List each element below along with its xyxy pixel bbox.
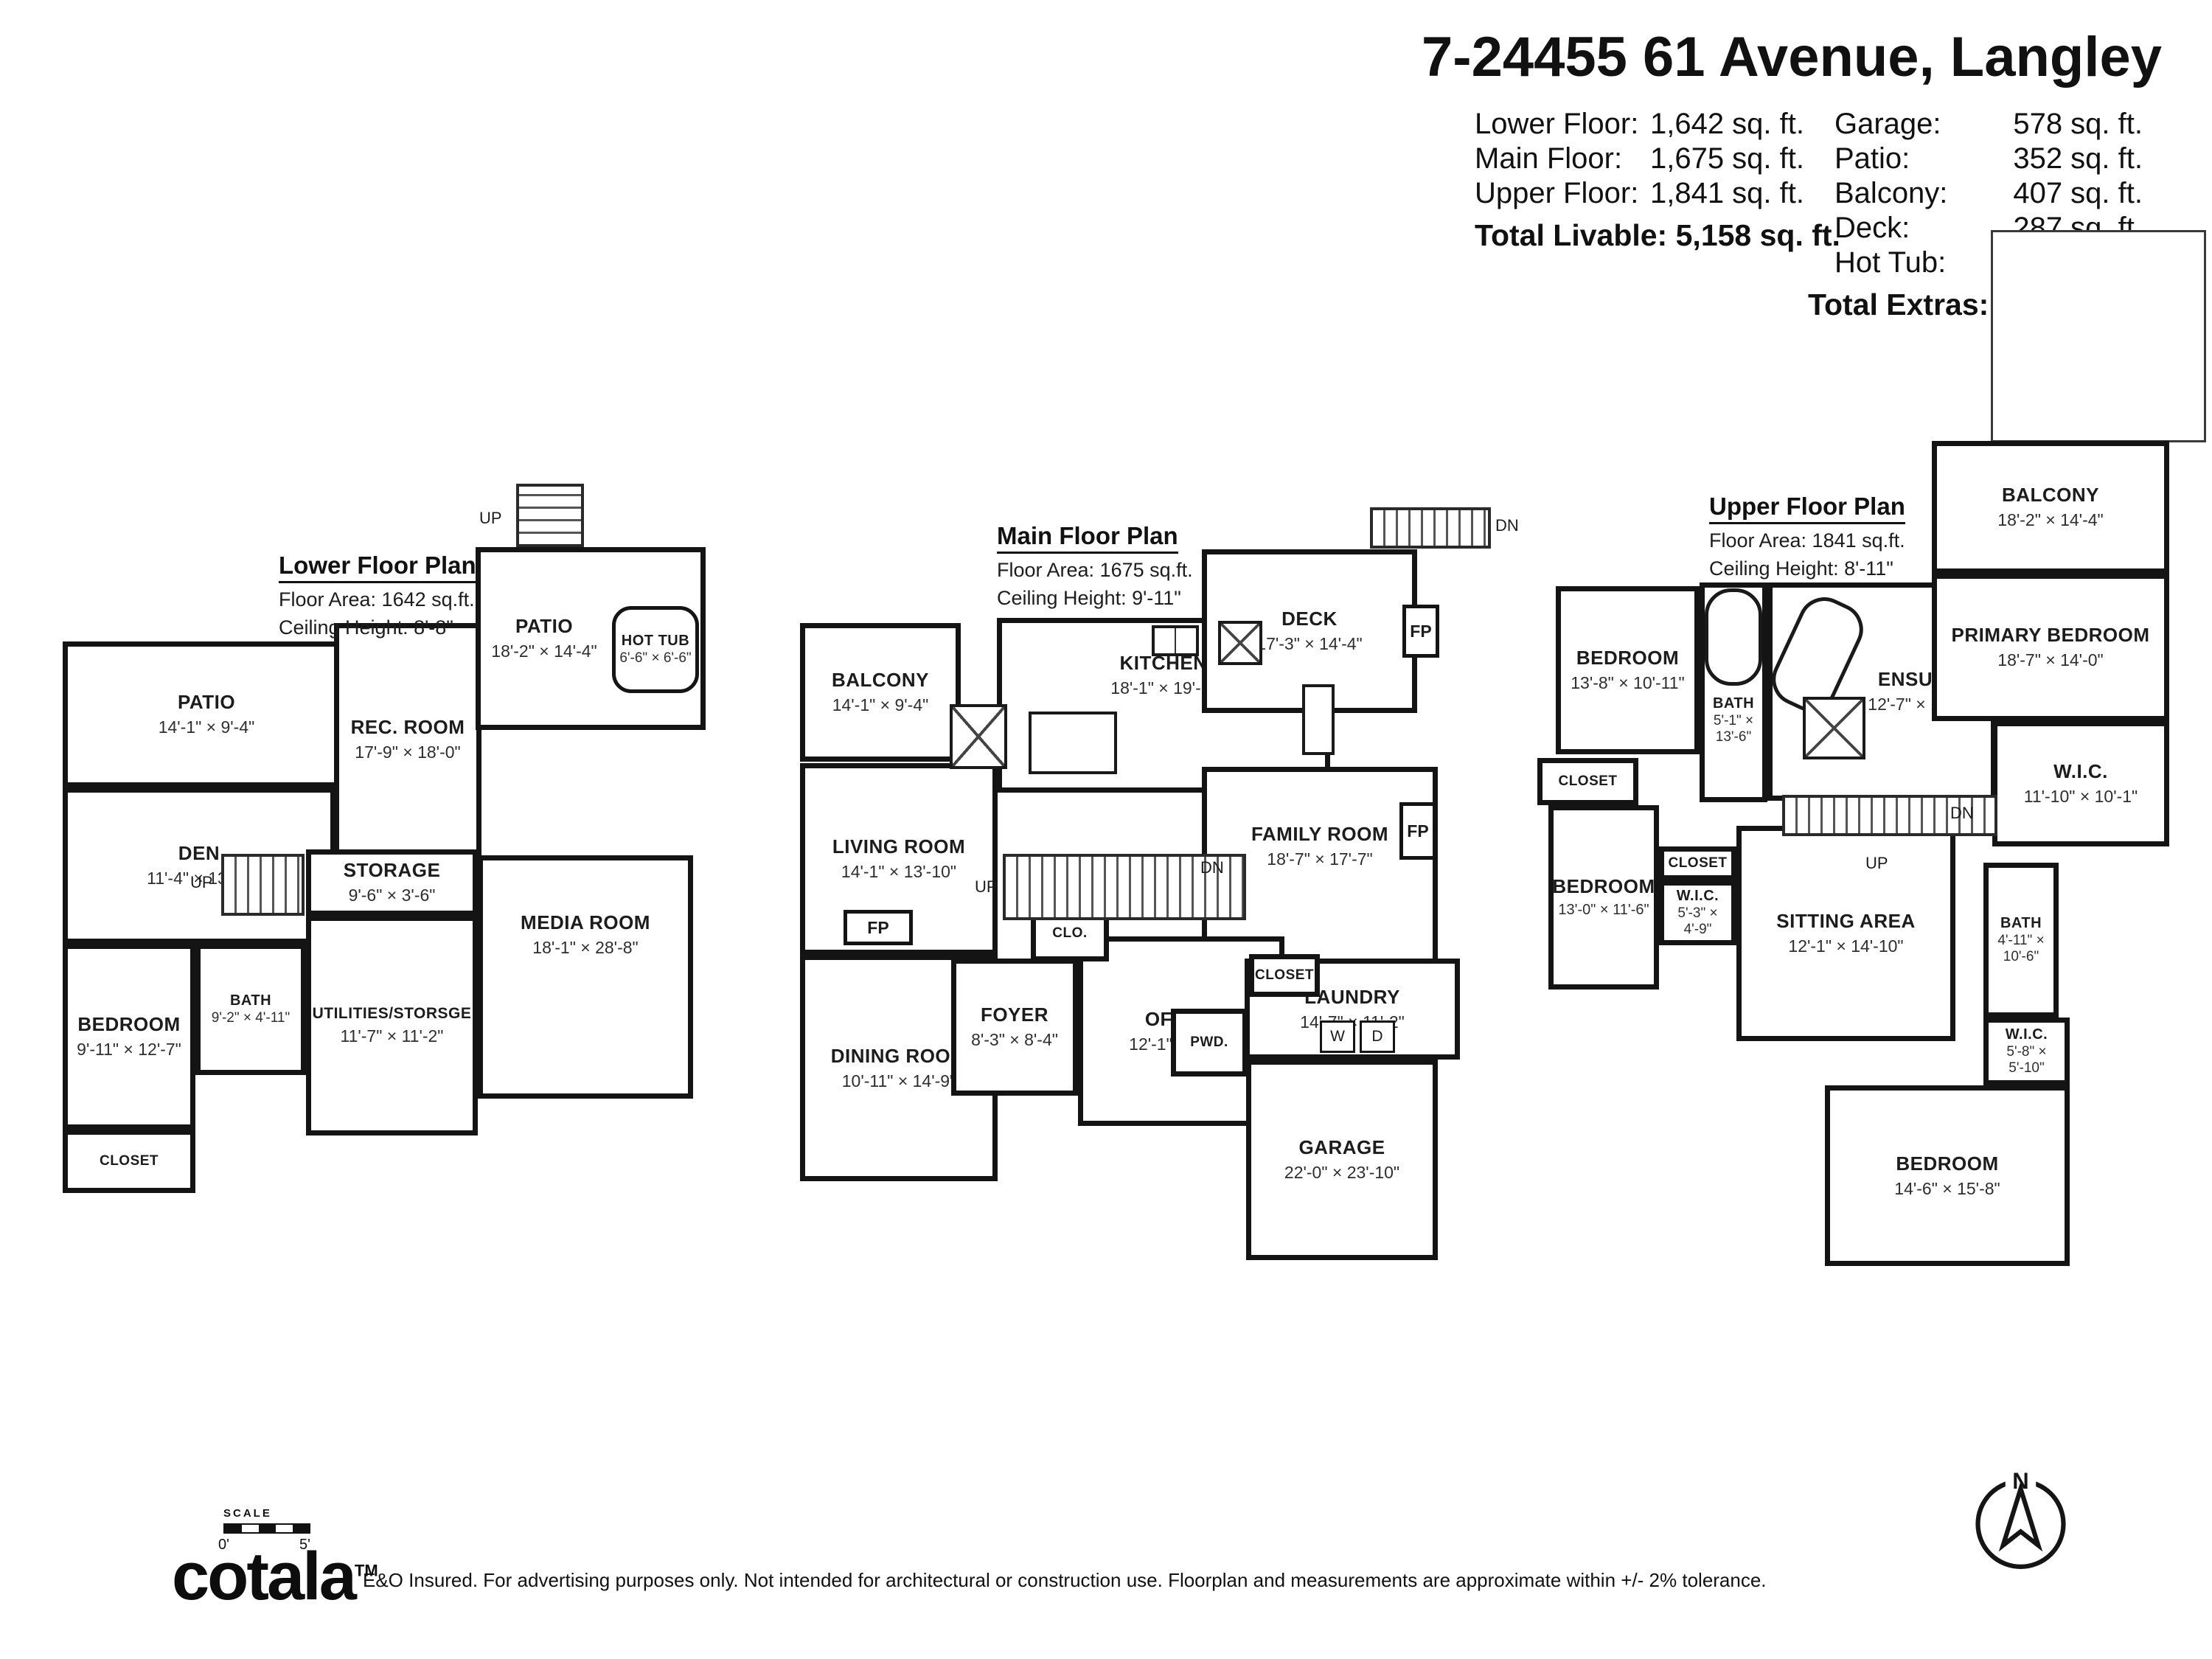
stat-patio: Patio: 352 sq. ft. <box>1834 142 2143 177</box>
upper-room-closet-2: CLOSET <box>1659 846 1736 880</box>
upper-stairs-dn-label: DN <box>1950 804 1974 823</box>
upper-room-primary-bedroom: PRIMARY BEDROOM 18'-7" × 14'-0" <box>1932 574 2169 721</box>
washer-icon: W <box>1320 1020 1355 1053</box>
stat-value: 1,675 sq. ft. <box>1650 142 1804 177</box>
lower-floor-title: Lower Floor Plan Floor Area: 1642 sq.ft.… <box>279 552 476 639</box>
stat-label: Upper Floor: <box>1475 177 1638 212</box>
compass-needle <box>2003 1489 2039 1545</box>
floor-title-text: Upper Floor Plan <box>1709 493 1905 524</box>
dryer-icon: D <box>1360 1020 1395 1053</box>
lower-stairs-up-label: UP <box>479 509 502 528</box>
floor-title-text: Lower Floor Plan <box>279 552 476 583</box>
upper-room-wic-primary: W.I.C. 11'-10" × 10'-1" <box>1992 721 2169 846</box>
kitchen-island <box>1029 712 1117 774</box>
upper-stairs-up-label: UP <box>1865 854 1888 873</box>
upper-room-sitting-area: SITTING AREA 12'-1" × 14'-10" <box>1736 826 1955 1041</box>
stat-lower-floor: Lower Floor: 1,642 sq. ft. <box>1475 108 1804 142</box>
balcony-roof-outline <box>1991 230 2206 442</box>
stat-label: Lower Floor: <box>1475 108 1638 142</box>
main-room-foyer: FOYER 8'-3" × 8'-4" <box>951 959 1078 1096</box>
lower-room-patio: PATIO 14'-1" × 9'-4" <box>63 641 350 787</box>
total-livable: Total Livable: 5,158 sq. ft. <box>1475 218 1840 253</box>
deck-fireplace-icon: FP <box>1402 605 1439 658</box>
main-stairs-dn-label: DN <box>1200 858 1224 877</box>
deck-stairs-icon <box>1370 507 1491 549</box>
disclaimer-text: E&O Insured. For advertising purposes on… <box>363 1569 1767 1592</box>
upper-room-closet-1: CLOSET <box>1537 758 1638 805</box>
ceiling-height-text: Ceiling Height: 8'-11" <box>1709 557 1905 580</box>
stat-balcony: Balcony: 407 sq. ft. <box>1834 177 2143 212</box>
main-stairs-up-label: UP <box>975 877 998 897</box>
floor-area-text: Floor Area: 1841 sq.ft. <box>1709 529 1905 552</box>
lower-room-utilities: UTILITIES/STORSGE 11'-7" × 11'-2" <box>306 916 478 1135</box>
stat-label: Deck: <box>1834 212 1910 246</box>
living-room-fireplace-icon: FP <box>844 910 913 945</box>
main-floor-title: Main Floor Plan Floor Area: 1675 sq.ft. … <box>997 522 1193 610</box>
stat-upper-floor: Upper Floor: 1,841 sq. ft. <box>1475 177 1804 212</box>
floor-title-text: Main Floor Plan <box>997 522 1178 554</box>
bath-tub-icon <box>1705 588 1762 686</box>
floor-area-text: Floor Area: 1675 sq.ft. <box>997 559 1193 582</box>
stat-value: 1,642 sq. ft. <box>1650 108 1804 142</box>
upper-room-wic-3: W.I.C. 5'-8" × 5'-10" <box>1983 1018 2070 1085</box>
page-title: 7-24455 61 Avenue, Langley <box>1422 25 2162 89</box>
total-extras-label: Total Extras: <box>1808 288 1989 321</box>
upper-room-balcony: BALCONY 18'-2" × 14'-4" <box>1932 441 2169 574</box>
family-room-fireplace-icon: FP <box>1399 802 1436 860</box>
cotala-logo: cotalaTM <box>172 1538 378 1615</box>
upper-room-wic-2: W.I.C. 5'-3" × 4'-9" <box>1659 880 1736 945</box>
lower-room-rec-room: REC. ROOM 17'-9" × 18'-0" <box>334 623 481 855</box>
upper-room-bedroom-2: BEDROOM 13'-0" × 11'-6" <box>1548 805 1659 990</box>
upper-room-bedroom-3: BEDROOM 14'-6" × 15'-8" <box>1825 1085 2070 1266</box>
stat-label: Balcony: <box>1834 177 1947 212</box>
ceiling-height-text: Ceiling Height: 9'-11" <box>997 587 1193 610</box>
main-room-closet: CLOSET <box>1249 954 1320 997</box>
main-room-powder: PWD. <box>1171 1009 1248 1077</box>
scale-label: SCALE <box>223 1507 272 1520</box>
scale-bar <box>223 1523 310 1534</box>
kitchen-sink-icon <box>1152 625 1199 656</box>
total-livable-label: Total Livable: <box>1475 218 1667 252</box>
ensuite-shower-icon <box>1803 697 1865 759</box>
brand-text: cotala <box>172 1539 355 1614</box>
deck-stairs-dn-label: DN <box>1495 516 1519 535</box>
stat-garage: Garage: 578 sq. ft. <box>1834 108 2143 142</box>
lower-room-bedroom: BEDROOM 9'-11" × 12'-7" <box>63 944 195 1130</box>
compass-icon: N <box>1967 1463 2074 1570</box>
floor-area-text: Floor Area: 1642 sq.ft. <box>279 588 476 611</box>
stat-label: Hot Tub: <box>1834 246 1946 281</box>
stat-value: 1,841 sq. ft. <box>1650 177 1804 212</box>
stat-label: Main Floor: <box>1475 142 1622 177</box>
lower-room-closet: CLOSET <box>63 1130 195 1193</box>
stat-label: Patio: <box>1834 142 1910 177</box>
lower-room-storage: STORAGE 9'-6" × 3'-6" <box>306 849 478 916</box>
floorplan-page: 7-24455 61 Avenue, Langley Lower Floor: … <box>0 0 2212 1659</box>
lower-room-media-room: MEDIA ROOM 18'-1" × 28'-8" <box>478 855 693 1099</box>
stat-value: 578 sq. ft. <box>2013 108 2143 142</box>
livable-stats: Lower Floor: 1,642 sq. ft. Main Floor: 1… <box>1475 108 1804 212</box>
main-room-garage: GARAGE 22'-0" × 23'-10" <box>1246 1060 1438 1260</box>
upper-room-bedroom-1: BEDROOM 13'-8" × 10'-11" <box>1556 586 1700 754</box>
stat-value: 407 sq. ft. <box>2013 177 2143 212</box>
ceiling-height-text: Ceiling Height: 8'-8" <box>279 616 476 639</box>
total-livable-value: 5,158 sq. ft. <box>1676 218 1840 252</box>
upper-room-bath-2: BATH 4'-11" × 10'-6" <box>1983 863 2059 1018</box>
stat-main-floor: Main Floor: 1,675 sq. ft. <box>1475 142 1804 177</box>
stat-value: 352 sq. ft. <box>2013 142 2143 177</box>
lower-room-bath: BATH 9'-2" × 4'-11" <box>195 944 306 1075</box>
lower-hot-tub: HOT TUB 6'-6" × 6'-6" <box>612 606 699 693</box>
upper-floor-title: Upper Floor Plan Floor Area: 1841 sq.ft.… <box>1709 493 1905 580</box>
stat-label: Garage: <box>1834 108 1941 142</box>
pantry-icon <box>950 704 1007 769</box>
stove-icon <box>1302 684 1335 755</box>
lower-stairs-up-icon <box>516 484 584 547</box>
main-room-balcony: BALCONY 14'-1" × 9'-4" <box>800 623 961 762</box>
lower-stairs-mid-label: UP <box>190 873 213 892</box>
lower-stairs-mid-icon <box>221 854 305 916</box>
kitchen-skylight-icon <box>1218 621 1262 665</box>
